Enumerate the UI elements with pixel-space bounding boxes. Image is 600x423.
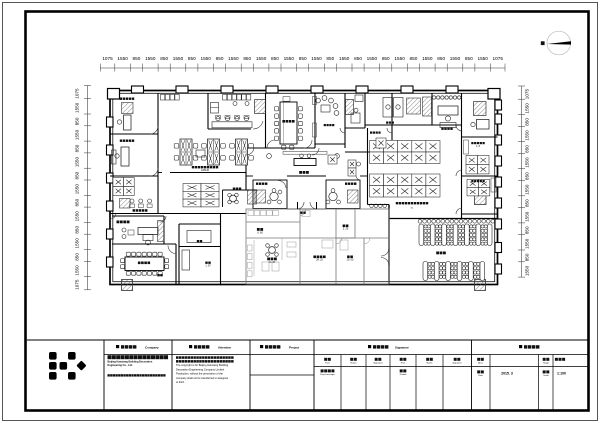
svg-text:company shall not be transferr: company shall not be transferred or assi… [176,376,228,380]
svg-text:850: 850 [75,117,80,125]
svg-text:1550: 1550 [75,238,80,249]
svg-text:Name: Name [427,363,434,365]
svg-text:1550: 1550 [75,157,80,168]
svg-text:850: 850 [75,198,80,206]
svg-text:Attention: Attention [218,345,231,349]
svg-text:Production, without the permis: Production, without the permission of th… [176,372,223,376]
svg-text:1550: 1550 [525,130,530,141]
svg-text:1550: 1550 [75,265,80,276]
svg-text:850: 850 [75,253,80,261]
svg-text:850: 850 [299,56,307,61]
svg-text:1550: 1550 [450,56,461,61]
svg-text:1550: 1550 [422,56,433,61]
svg-text:28. 32: 28. 32 [316,259,323,262]
svg-text:3. 20: 3. 20 [343,228,349,231]
svg-text:1:100: 1:100 [557,371,566,375]
svg-text:850: 850 [525,145,530,153]
svg-text:1550: 1550 [339,56,350,61]
svg-text:1550: 1550 [75,102,80,113]
svg-text:1550: 1550 [367,56,378,61]
svg-text:1550: 1550 [173,56,184,61]
svg-text:850: 850 [271,56,279,61]
svg-text:850: 850 [133,56,141,61]
svg-text:Stage: Stage [543,362,550,365]
svg-text:850: 850 [525,199,530,207]
svg-text:Drafted: Drafted [400,373,407,376]
svg-text:1075: 1075 [75,88,80,99]
svg-text:Project manager: Project manager [320,373,335,376]
svg-text:850: 850 [216,56,224,61]
svg-text:Project: Project [289,345,299,349]
svg-text:Post: Post [401,362,406,365]
svg-text:Signature: Signature [373,362,383,365]
svg-text:Company: Company [145,345,159,349]
svg-text:1. 97: 1. 97 [205,265,211,268]
svg-text:850: 850 [525,172,530,180]
svg-text:850: 850 [243,56,251,61]
svg-text:1550: 1550 [525,211,530,222]
svg-text:Post: Post [325,362,330,365]
svg-text:Area: Area [478,362,483,365]
svg-text:850: 850 [525,118,530,126]
svg-text:Date: Date [478,374,483,377]
svg-text:1550: 1550 [477,56,488,61]
svg-text:1550: 1550 [228,56,239,61]
svg-text:850: 850 [525,226,530,234]
svg-text:1075: 1075 [493,56,504,61]
svg-text:1550: 1550 [525,103,530,114]
svg-text:1550: 1550 [525,184,530,195]
svg-text:1550: 1550 [75,129,80,140]
svg-text:850: 850 [75,144,80,152]
svg-text:1550: 1550 [525,238,530,249]
svg-text:2015. 3: 2015. 3 [501,371,513,375]
svg-text:Signature: Signature [452,362,462,365]
svg-text:Scale: Scale [543,375,549,377]
svg-text:1075: 1075 [102,56,113,61]
svg-text:850: 850 [382,56,390,61]
svg-text:850: 850 [465,56,473,61]
svg-text:to third.: to third. [176,380,185,384]
svg-text:The copyright is for Beijing H: The copyright is for Beijing Hanxiang Bu… [176,363,229,367]
svg-text:850: 850 [188,56,196,61]
svg-text:850: 850 [437,56,445,61]
svg-text:Name: Name [351,363,358,365]
svg-text:40. 01: 40. 01 [269,261,276,264]
svg-text:850: 850 [75,171,80,179]
svg-text:1550: 1550 [256,56,267,61]
svg-text:850: 850 [410,56,418,61]
svg-text:1550: 1550 [145,56,156,61]
svg-text:31.: 31. [410,207,413,209]
svg-text:850: 850 [75,226,80,234]
svg-text:1550: 1550 [525,157,530,168]
svg-text:Signature: Signature [395,345,409,349]
svg-text:1550: 1550 [75,211,80,222]
svg-text:1550: 1550 [394,56,405,61]
svg-text:Engineering Co., Ltd.: Engineering Co., Ltd. [108,364,133,367]
svg-text:1. 8: 1. 8 [476,145,481,148]
svg-text:1550: 1550 [75,184,80,195]
svg-text:850: 850 [525,253,530,261]
svg-text:1550: 1550 [200,56,211,61]
svg-text:850: 850 [354,56,362,61]
svg-text:10. 00: 10. 00 [347,259,354,262]
svg-text:Decoration Engineering Company: Decoration Engineering Company Limited. [176,367,225,371]
svg-text:1550: 1550 [117,56,128,61]
svg-text:1550: 1550 [311,56,322,61]
svg-text:1550: 1550 [284,56,295,61]
svg-text:128440: 128440 [201,169,210,172]
svg-text:1075: 1075 [75,279,80,290]
svg-text:1075: 1075 [525,89,530,100]
svg-text:6. 60: 6. 60 [257,231,263,234]
svg-text:850: 850 [326,56,334,61]
svg-text:850: 850 [160,56,168,61]
svg-text:1550: 1550 [525,265,530,276]
